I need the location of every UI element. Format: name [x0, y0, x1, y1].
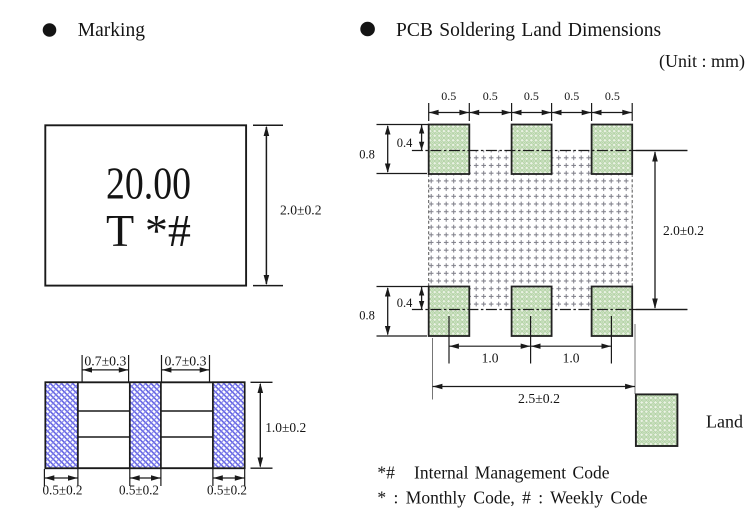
svg-text:0.8: 0.8 — [359, 309, 375, 323]
svg-text:0.7±0.3: 0.7±0.3 — [84, 355, 126, 370]
svg-text:0.5: 0.5 — [524, 89, 539, 103]
svg-text:0.8: 0.8 — [359, 148, 375, 162]
svg-text:* : Monthly Code, # : Weekly C: * : Monthly Code, # : Weekly Code — [377, 488, 647, 508]
svg-text:2.0±0.2: 2.0±0.2 — [663, 224, 704, 239]
svg-text:0.4: 0.4 — [397, 136, 413, 150]
svg-text:0.5±0.2: 0.5±0.2 — [207, 484, 247, 499]
svg-text:1.0: 1.0 — [482, 351, 499, 366]
svg-text:0.7±0.3: 0.7±0.3 — [165, 355, 207, 370]
svg-text:20.00: 20.00 — [106, 158, 191, 209]
svg-text:T *#: T *# — [106, 205, 191, 256]
svg-text:0.5: 0.5 — [564, 89, 579, 103]
svg-text:0.4: 0.4 — [397, 296, 413, 310]
svg-text:Marking: Marking — [78, 20, 145, 41]
svg-text:2.0±0.2: 2.0±0.2 — [280, 204, 322, 219]
svg-text:0.5: 0.5 — [605, 89, 620, 103]
svg-text:0.5±0.2: 0.5±0.2 — [119, 484, 159, 499]
svg-text:0.5±0.2: 0.5±0.2 — [43, 484, 83, 499]
svg-text:*# Internal Management Code: *# Internal Management Code — [377, 463, 609, 483]
svg-text:(Unit : mm): (Unit : mm) — [659, 51, 745, 72]
svg-text:Land: Land — [706, 412, 743, 432]
svg-text:0.5: 0.5 — [483, 89, 498, 103]
svg-text:1.0: 1.0 — [563, 351, 580, 366]
svg-text:1.0±0.2: 1.0±0.2 — [265, 421, 306, 436]
svg-text:PCB Soldering Land Dimensions: PCB Soldering Land Dimensions — [396, 20, 661, 41]
svg-text:0.5: 0.5 — [441, 89, 456, 103]
svg-text:2.5±0.2: 2.5±0.2 — [518, 392, 560, 407]
